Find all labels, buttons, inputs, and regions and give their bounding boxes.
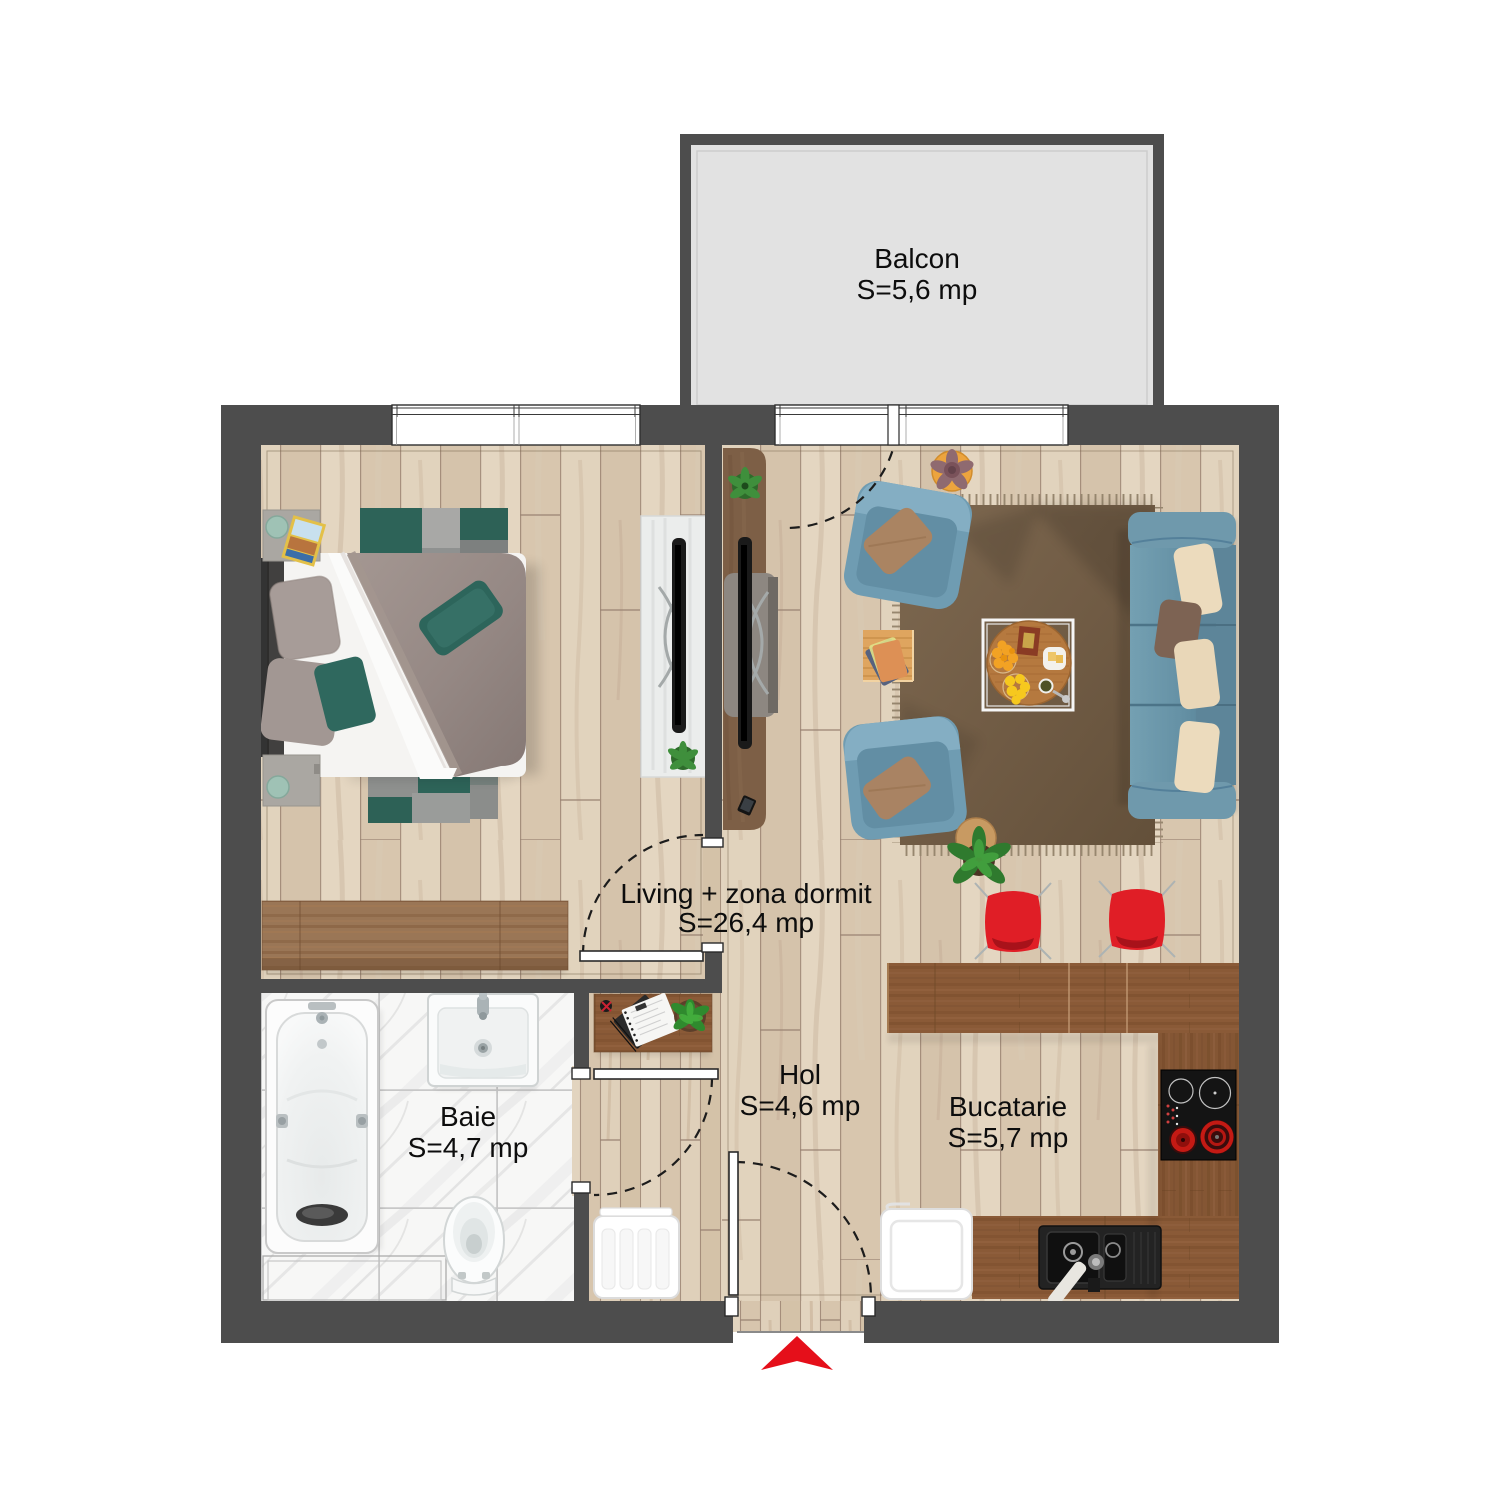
svg-text:S=26,4 mp: S=26,4 mp: [678, 907, 814, 938]
svg-text:S=5,7 mp: S=5,7 mp: [948, 1122, 1069, 1153]
svg-text:Baie: Baie: [440, 1101, 496, 1132]
svg-text:Hol: Hol: [779, 1059, 821, 1090]
svg-text:S=4,6 mp: S=4,6 mp: [740, 1090, 861, 1121]
svg-text:S=4,7 mp: S=4,7 mp: [408, 1132, 529, 1163]
svg-text:Bucatarie: Bucatarie: [949, 1091, 1067, 1122]
svg-text:Balcon: Balcon: [874, 243, 960, 274]
svg-text:S=5,6 mp: S=5,6 mp: [857, 274, 978, 305]
svg-text:Living + zona dormit: Living + zona dormit: [620, 878, 872, 909]
